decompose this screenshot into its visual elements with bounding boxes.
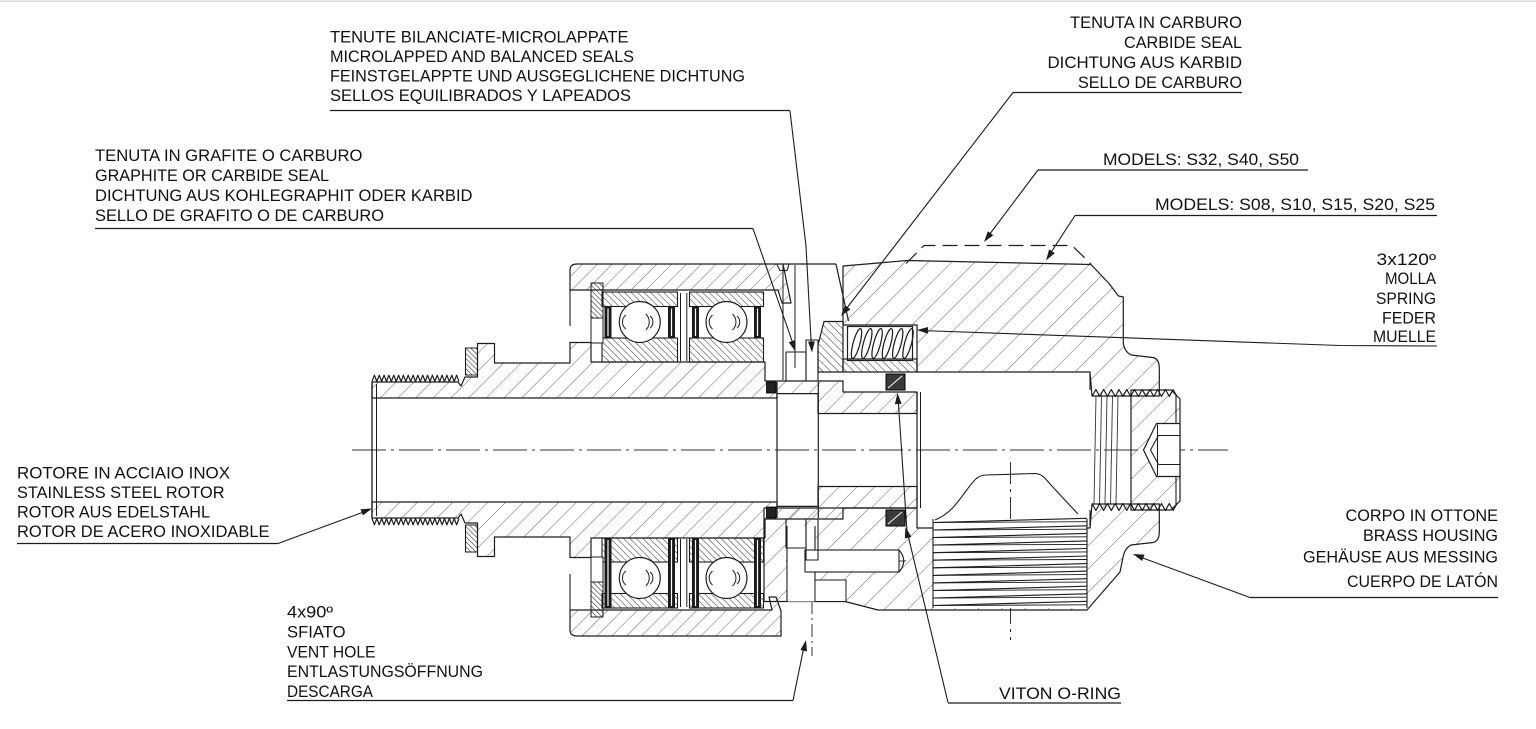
svg-text:TENUTA IN CARBURO: TENUTA IN CARBURO [1070,14,1242,32]
svg-text:SFIATO: SFIATO [287,624,346,642]
svg-text:SELLOS EQUILIBRADOS Y LAPEADOS: SELLOS EQUILIBRADOS Y LAPEADOS [330,87,631,105]
svg-text:DICHTUNG AUS KARBID: DICHTUNG AUS KARBID [1048,54,1243,72]
svg-text:TENUTE BILANCIATE-MICROLAPPATE: TENUTE BILANCIATE-MICROLAPPATE [330,29,629,47]
svg-text:4x90º: 4x90º [287,604,333,622]
svg-text:CUERPO DE LATÓN: CUERPO DE LATÓN [1347,572,1498,591]
svg-text:CARBIDE SEAL: CARBIDE SEAL [1124,34,1242,52]
svg-text:ROTOR DE ACERO INOXIDABLE: ROTOR DE ACERO INOXIDABLE [17,523,270,541]
svg-text:DESCARGA: DESCARGA [287,683,373,701]
svg-text:ROTOR AUS EDELSTAHL: ROTOR AUS EDELSTAHL [17,504,210,522]
svg-text:VENT HOLE: VENT HOLE [287,644,376,662]
svg-text:DICHTUNG AUS KOHLEGRAPHIT ODER: DICHTUNG AUS KOHLEGRAPHIT ODER KARBID [95,187,472,205]
svg-text:MICROLAPPED AND BALANCED SEALS: MICROLAPPED AND BALANCED SEALS [330,48,634,66]
svg-text:3x120º: 3x120º [1377,251,1437,269]
svg-text:ENTLASTUNGSÖFFNUNG: ENTLASTUNGSÖFFNUNG [287,663,483,681]
svg-text:CORPO IN OTTONE: CORPO IN OTTONE [1346,507,1499,525]
svg-text:SPRING: SPRING [1376,290,1436,308]
svg-text:GRAPHITE OR CARBIDE SEAL: GRAPHITE OR CARBIDE SEAL [95,167,329,185]
svg-text:SELLO DE CARBURO: SELLO DE CARBURO [1078,74,1242,92]
svg-text:GEHÄUSE AUS MESSING: GEHÄUSE AUS MESSING [1303,549,1498,567]
svg-text:SELLO DE GRAFITO O DE CARBURO: SELLO DE GRAFITO O DE CARBURO [95,207,384,225]
svg-text:MUELLE: MUELLE [1373,328,1436,346]
svg-text:BRASS HOUSING: BRASS HOUSING [1363,527,1498,545]
svg-text:MODELS: S32, S40, S50: MODELS: S32, S40, S50 [1103,151,1299,169]
svg-text:FEINSTGELAPPTE UND AUSGEGLICHE: FEINSTGELAPPTE UND AUSGEGLICHENE DICHTUN… [330,68,745,86]
svg-text:STAINLESS STEEL ROTOR: STAINLESS STEEL ROTOR [17,484,225,502]
svg-text:ROTORE IN ACCIAIO INOX: ROTORE IN ACCIAIO INOX [17,465,230,483]
svg-text:VITON O-RING: VITON O-RING [999,685,1121,703]
svg-text:TENUTA IN GRAFITE O CARBURO: TENUTA IN GRAFITE O CARBURO [95,147,363,165]
svg-text:MODELS: S08, S10, S15, S20, S2: MODELS: S08, S10, S15, S20, S25 [1155,196,1435,214]
svg-text:MOLLA: MOLLA [1385,270,1436,288]
svg-text:FEDER: FEDER [1382,310,1436,328]
